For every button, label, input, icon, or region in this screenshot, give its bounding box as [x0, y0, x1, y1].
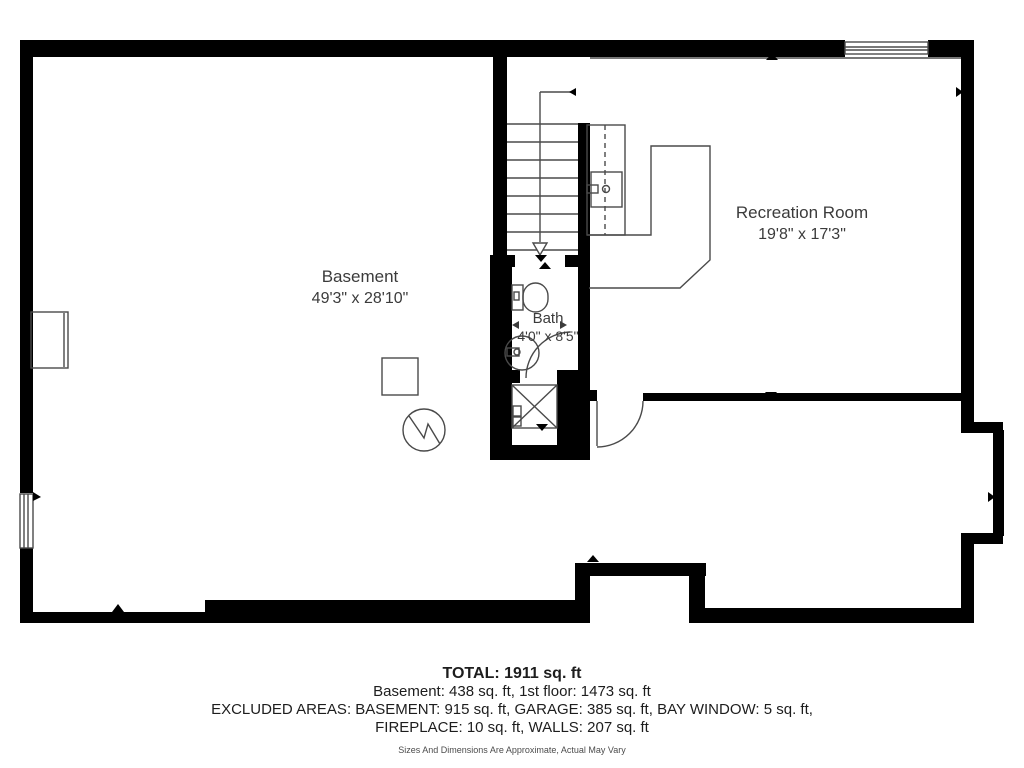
- floor-plan-drawing: [0, 0, 1024, 768]
- area-breakdown-line1: Basement: 438 sq. ft, 1st floor: 1473 sq…: [0, 683, 1024, 701]
- area-summary: TOTAL: 1911 sq. ft Basement: 438 sq. ft,…: [0, 664, 1024, 756]
- fireplace-icon: [31, 312, 68, 368]
- room-dimensions: 4'0" x 8'5": [517, 328, 578, 345]
- rec-room-door-arc: [597, 401, 643, 447]
- room-dimensions: 49'3" x 28'10": [312, 288, 409, 310]
- furnace-icon: [587, 125, 625, 235]
- area-breakdown-line3: FIREPLACE: 10 sq. ft, WALLS: 207 sq. ft: [0, 719, 1024, 737]
- recreation-room-label: Recreation Room 19'8" x 17'3": [736, 202, 868, 246]
- direction-markers: [33, 53, 995, 612]
- stairs-icon: [507, 92, 578, 255]
- support-post-icon: [382, 358, 418, 395]
- bath-label: Bath 4'0" x 8'5": [517, 310, 578, 345]
- area-breakdown-line2: EXCLUDED AREAS: BASEMENT: 915 sq. ft, GA…: [0, 701, 1024, 719]
- room-dimensions: 19'8" x 17'3": [736, 224, 868, 246]
- basement-label: Basement 49'3" x 28'10": [312, 266, 409, 310]
- floor-plan-page: Basement 49'3" x 28'10" Recreation Room …: [0, 0, 1024, 768]
- room-name: Recreation Room: [736, 202, 868, 224]
- interior-walls: [490, 57, 963, 460]
- top-window-icon: [845, 40, 928, 57]
- disclaimer-text: Sizes And Dimensions Are Approximate, Ac…: [0, 745, 1024, 756]
- room-name: Bath: [517, 310, 578, 328]
- toilet-icon: [512, 283, 548, 312]
- sump-pump-icon: [403, 409, 445, 451]
- total-area-text: TOTAL: 1911 sq. ft: [0, 664, 1024, 683]
- crawl-space-access: [512, 385, 557, 428]
- room-name: Basement: [312, 266, 409, 288]
- left-window-icon: [19, 493, 34, 548]
